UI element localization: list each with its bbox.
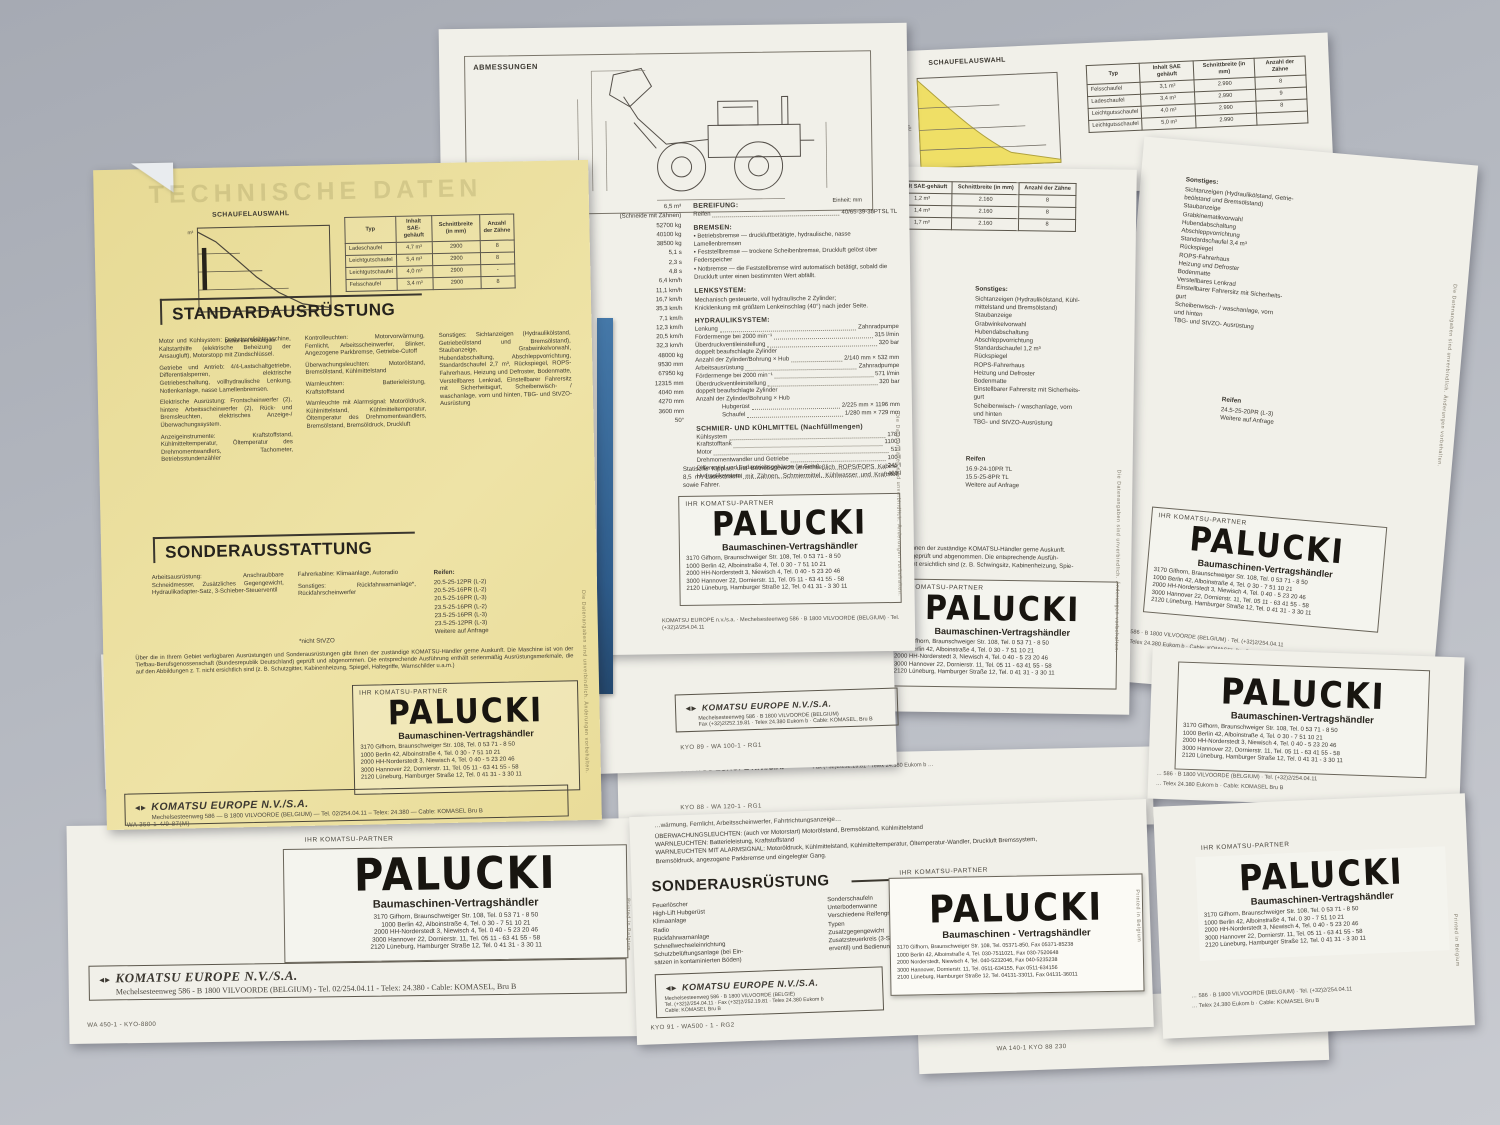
form-code: KYO 89 - WA 100-1 - RG1 (680, 742, 762, 752)
paragraph: Arbeitsausrüstung: Anschraubbare Schneid… (152, 572, 284, 598)
bucket-table-small: Inhalt SAE-gehäuft Schnittbreite (in mm)… (891, 180, 1077, 232)
leader-dots (713, 210, 840, 218)
reifen-list: 16.9-24-10PR TL15.5-25-8PR TLWeitere auf… (965, 465, 1019, 490)
komatsu-logo-icon: ◄► (664, 984, 676, 993)
palucki-logo: PALUCKI (685, 503, 894, 545)
palucki-dealer-box: IHR KOMATSU-PARTNER PALUCKI Baumaschinen… (352, 680, 580, 795)
palucki-address-line: 2120 Lüneburg, Hamburger Straße 12, Tel.… (686, 583, 894, 593)
hydraulic-rows: LenkungZahnradpumpe Fördermenge bei 2000… (695, 324, 900, 420)
palucki-addresses: 3170 Gifhorn, Braunschweiger Str. 108, T… (686, 553, 895, 594)
side-note: Die Datenangaben sind unverbindlich. Änd… (894, 413, 903, 596)
col-header: Schnittbreite (in mm) (432, 215, 480, 242)
sonstiges-title: Sonstiges: (975, 286, 1008, 293)
palucki-logo: PALUCKI (896, 884, 1137, 933)
col-header: Anzahl der Zähne (1254, 56, 1306, 77)
steering-lines: Mechanisch gesteuerte, voll hydraulische… (694, 293, 898, 312)
sonder-col2: Fahrerkabine: Klimaanlage, AutoradioSons… (298, 570, 417, 603)
spec-value: 40/65-39-38PTSL TL (841, 209, 897, 218)
reifen-title: Reifen (1221, 396, 1241, 405)
spec-label: Reifen (693, 212, 710, 220)
list-item: Notbremse — die Feststellbremse wird aut… (694, 264, 898, 282)
brakes-list: Betriebsbremse — druckluftbetätigte, hyd… (694, 231, 899, 283)
section-title: LENKSYSTEM: (694, 284, 898, 294)
palucki-addresses: 3170 Gifhorn, Braunschweiger Str. 108, T… (1182, 723, 1421, 769)
section-title: BREMSEN: (693, 222, 897, 232)
sheet-right-standard-equipment: Sonstiges: Sichtanzeigen (Hydraulikölsta… (1097, 136, 1478, 708)
sonder-col1: FeuerlöscherHigh-Lift HubgerüstKlimaanla… (652, 899, 744, 968)
side-note: Printed in Belgium (625, 898, 632, 951)
side-note: Die Datenangaben sind unverbindlich. Änd… (580, 590, 590, 773)
palucki-dealer-box: PALUCKI Baumaschinen-Vertragshändler 317… (1195, 846, 1449, 961)
sheet-bottom-left-dealer: IHR KOMATSU-PARTNER PALUCKI Baumaschinen… (67, 818, 645, 1044)
palucki-sticker-box: PALUCKI Baumaschinen - Vertragshändler 3… (889, 873, 1145, 995)
komatsu-europe-footer: ◄►KOMATSU EUROPE N.V./S.A. Mechelsesteen… (675, 687, 899, 732)
komatsu-logo-icon: ◄► (98, 975, 110, 984)
photo-of-komatsu-brochures: { "shared": { "partner_label": "IHR KOMA… (0, 0, 1500, 1125)
optional-equipment-heading: SONDERAUSSTATTUNG (153, 532, 415, 563)
sheet-warning-lights-options: …wärmung, Fernlicht, Arbeitsscheinwerfer… (629, 799, 1154, 1045)
palucki-dealer-box: IHR KOMATSU-PARTNER PALUCKI Baumaschinen… (678, 493, 902, 606)
list-item: Betriebsbremse — druckluftbetätigte, hyd… (694, 231, 898, 249)
standard-col1: Motor und Kühlsystem: Drehstromlichtmasc… (159, 336, 294, 469)
palucki-addresses: 3170 Gifhorn, Braunschweiger Str. 108, T… (897, 941, 1138, 983)
palucki-addresses: 3170 Gifhorn, Braunschweiger Str. 108, T… (1204, 902, 1443, 950)
form-code: KYO 88 - WA 120-1 - RG1 (680, 803, 762, 812)
col-header: Inhalt SAE gehäuft (1140, 61, 1195, 82)
paragraph: Motor und Kühlsystem: Drehstromlichtmasc… (159, 336, 291, 362)
blue-brochure-edge (597, 318, 613, 694)
footer-fragment: … 586 · B 1800 VILVOORDE (BELGIUM) · Tel… (1191, 986, 1352, 1000)
palucki-addresses: 3170 Gifhorn, Braunschweiger Str. 108, T… (291, 910, 621, 953)
footer-fragment: … Telex 24.380 Eukom b · Cable: KOMASEL … (1156, 781, 1284, 792)
col-header: Typ (345, 216, 396, 243)
list-item: Weitere auf Anfrage (965, 482, 1019, 491)
paragraph: Elektrische Ausrüstung: Frontscheinwerfe… (160, 397, 293, 430)
spec-row: Reifen40/65-39-38PTSL TL (693, 209, 897, 220)
form-code: KYO 91 - WA500 - 1 - RG2 (650, 1022, 734, 1032)
section-heading: SONDERAUSSTATTUNG (165, 538, 373, 561)
side-note: Die Datenangaben sind unverbindlich. Änd… (1436, 284, 1458, 467)
disclaimer: Über die in Ihrem Gebiet verfügbaren Aus… (135, 646, 573, 677)
komatsu-logo-icon: ◄► (684, 704, 696, 713)
section-heading: STANDARDAUSRÜSTUNG (172, 300, 395, 324)
partner-label: IHR KOMATSU-PARTNER (1201, 841, 1290, 852)
palucki-logo: PALUCKI (290, 847, 621, 903)
spec-sections: BEREIFUNG: Reifen40/65-39-38PTSL TL BREM… (693, 195, 901, 481)
footer-fragment: … Telex 24.380 Eukom b · Cable: KOMASEL … (1192, 998, 1320, 1011)
palucki-logo: PALUCKI (359, 690, 572, 734)
standard-equipment-heading: STANDARDAUSRÜSTUNG (160, 293, 422, 324)
table-row: 1,7 m³2.1608 (891, 217, 1075, 232)
komatsu-europe-footer: ◄►KOMATSU EUROPE N.V./S.A. Mechelsesteen… (124, 784, 569, 825)
col-header: Anzahl der Zähne (480, 214, 515, 241)
paragraph: Überwachungsleuchten: Motorölstand, Brem… (305, 360, 425, 378)
sheet-yellow-technical-data: TECHNISCHE DATEN SCHAUFELAUSWAHL m³ Dich… (93, 160, 602, 830)
tires-title: Reifen: (434, 569, 455, 576)
palucki-dealer-box: PALUCKI Baumaschinen-Vertragshändler 317… (283, 844, 629, 963)
palucki-addresses: 3170 Gifhorn, Braunschweiger Str. 108, T… (360, 740, 573, 782)
komatsu-europe-footer: ◄►KOMATSU EUROPE N.V./S.A. Mechelsesteen… (88, 958, 626, 1001)
list-item: sätzen in kontaminierten Böden) (654, 957, 744, 968)
form-code: WA 140-1 KYO 88 230 (996, 1043, 1066, 1052)
col-header: Inhalt SAE-gehäuft (395, 216, 432, 243)
side-note: Printed in Belgium (1452, 914, 1460, 967)
col-header: Typ (1086, 63, 1140, 84)
paragraph: Warnleuchte mit Alarmsignal: Motoröldruc… (306, 398, 427, 431)
palucki-dealer-box: IHR KOMATSU-PARTNER PALUCKI Baumaschinen… (887, 578, 1118, 689)
komatsu-europe-title: KOMATSU EUROPE N.V./S.A. (151, 798, 308, 813)
sheet-right-middle-dealer: PALUCKI Baumaschinen-Vertragshändler 317… (1147, 647, 1464, 810)
komatsu-europe-title: KOMATSU EUROPE N.V./S.A. (115, 968, 297, 986)
section-title: SCHMIER- UND KÜHLMITTEL (Nachfüllmengen) (696, 422, 900, 432)
section-title: BEREIFUNG: (693, 200, 897, 210)
paragraph: Warnleuchten: Batterieleistung, Kraftsto… (306, 379, 426, 397)
partner-label: IHR KOMATSU-PARTNER (305, 835, 394, 843)
side-note: Die Datenangaben sind unverbindlich. Änd… (1113, 470, 1122, 653)
palucki-logo: PALUCKI (894, 588, 1111, 630)
paragraph: Kontrolleuchten: Motorvorwärmung, Fernli… (305, 333, 425, 358)
tires-list: 20.5-25-12PR (L-2)20.5-25-16PR (L-2)20.5… (434, 578, 489, 637)
palucki-addresses: 3170 Gifhorn, Braunschweiger Str. 108, T… (894, 638, 1111, 679)
komatsu-europe-title: KOMATSU EUROPE N.V./S.A. (682, 978, 819, 993)
list-item: … T. nicht ersichtlich sind (z. B. Schwi… (890, 561, 1073, 572)
list-item: Weitere auf Anfrage (435, 627, 489, 636)
bucket-table: Typ Inhalt SAE-gehäuft Schnittbreite (in… (344, 213, 516, 292)
komatsu-footer-line: KOMATSU EUROPE n.v./s.a. · Mechelsesteen… (662, 615, 915, 633)
palucki-logo: PALUCKI (1184, 668, 1423, 719)
reifen-list: 24.5-25-20PR (L-3)Weitere auf Anfrage (1220, 406, 1275, 427)
paragraph: Sonstiges: Rückfahrwarnanlage*, Rückfahr… (298, 581, 416, 599)
paragraph: Anzeigeinstrumente: Kraftstoffstand, Küh… (161, 432, 294, 465)
palucki-dealer-box: IHR KOMATSU-PARTNER PALUCKI Baumaschinen… (1143, 507, 1387, 633)
watermark-title: TECHNISCHE DATEN (148, 174, 482, 210)
form-code: WA 350-1-4/9-87(M) (127, 820, 190, 828)
list-item: Feststellbremse — trockene Scheibenbrems… (694, 247, 898, 265)
standard-col2: Kontrolleuchten: Motorvorwärmung, Fernli… (305, 333, 427, 435)
section-title: HYDRAULIKSYSTEM: (695, 315, 899, 325)
col-header: Anzahl der Zähne (1019, 183, 1076, 196)
sonstiges-list: Sichtanzeigen (Hydraulikölstand, Getrie-… (1173, 186, 1294, 334)
static-load-note: Statische Kipplast und Betriebsgewicht e… (683, 463, 899, 490)
col-header: Schnittbreite (in mm) (952, 182, 1019, 195)
reifen-title: Reifen (966, 455, 986, 462)
bucket-table: Typ Inhalt SAE gehäuft Schnittbreite (in… (1086, 56, 1309, 134)
paragraph: Getriebe und Antrieb: 4/4-Lastschaltgetr… (159, 363, 292, 396)
komatsu-europe-title: KOMATSU EUROPE N.V./S.A. (702, 699, 832, 713)
list-item: TBG- und StVZO-Ausrüstung (973, 419, 1079, 429)
disclaimer-fragments: … gibt Ihnen der zuständige KOMATSU-Händ… (890, 544, 1073, 571)
sonstiges-title: Sonstiges: (1185, 176, 1218, 186)
section-heading: SONDERAUSRÜSTUNG (651, 872, 830, 895)
sheet-bottom-right-dealer: IHR KOMATSU-PARTNER PALUCKI Baumaschinen… (1153, 793, 1475, 1038)
standard-col3: Sonstiges: Sichtanzeigen (Hydraulikölsta… (439, 330, 573, 413)
komatsu-europe-footer: ◄►KOMATSU EUROPE N.V./S.A. Mechelsesteen… (655, 966, 884, 1018)
komatsu-logo-icon: ◄► (133, 803, 145, 812)
footnote: *nicht StVZO (299, 637, 335, 646)
sonstiges-list: Sichtanzeigen (Hydraulikölstand, Kühl-mi… (973, 296, 1081, 429)
paragraph: Sonstiges: Sichtanzeigen (Hydraulikölsta… (439, 330, 573, 409)
sonder-col1: Arbeitsausrüstung: Anschraubbare Schneid… (152, 572, 285, 602)
list-item: Knicklenkung mit größtem Lenkeinschlag (… (695, 302, 899, 313)
svg-text:m³: m³ (187, 230, 193, 236)
palucki-address-line: 2120 Lüneburg, Hamburger Straße 12, Tel.… (894, 669, 1110, 680)
palucki-dealer-box: PALUCKI Baumaschinen-Vertragshändler 317… (1174, 662, 1430, 779)
table-row: Felsschaufel3,4 m³29008 (346, 276, 515, 292)
paragraph: Fahrerkabine: Klimaanlage, Autoradio (298, 570, 416, 580)
form-code: WA 450-1 - KYO-8800 (87, 1021, 156, 1029)
